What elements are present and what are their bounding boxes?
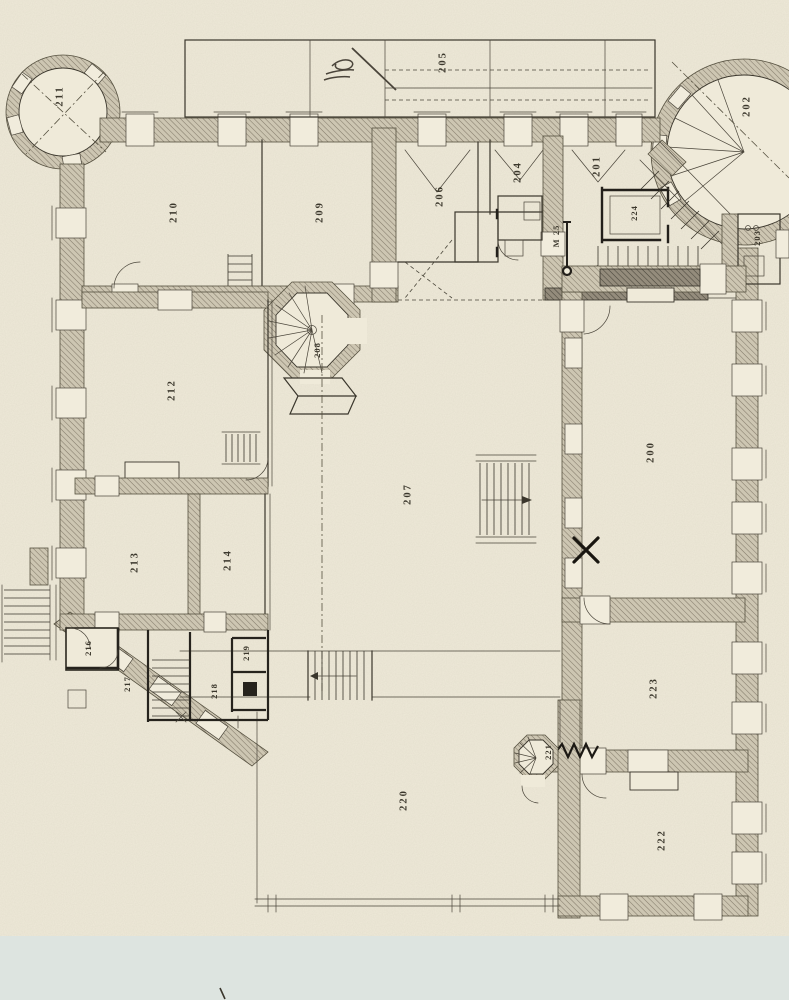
annotation-section-mark: M 25 [551,225,561,248]
room-label-206: 206 [435,185,446,207]
room-label-207: 207 [403,483,414,505]
room-label-219: 219 [241,645,251,661]
tower-211 [6,55,120,169]
room-label-212: 212 [167,379,178,401]
room-label-224: 224 [629,205,639,221]
room-label-222: 222 [657,829,668,851]
room-label-200: 200 [646,441,657,463]
room-label-220: 220 [399,789,410,811]
room-label-204: 204 [513,161,524,183]
room-label-211: 211 [55,85,66,106]
scan-bottom-marks [0,936,789,1000]
room-label-216: 216 [83,640,93,656]
room-label-205: 205 [438,51,449,73]
room-label-223: 223 [649,677,660,699]
scan-margin-bottom [0,936,789,1000]
room-label-217: 217 [122,676,132,692]
room-label-203: 203 [752,230,762,246]
scanned-floor-plan: 211 210 209 206 205 204 201 224 202 203 … [0,0,789,1000]
room-label-210: 210 [169,201,180,223]
room-label-221: 221 [543,744,553,760]
room-label-201: 201 [592,155,603,177]
room-label-208: 208 [312,342,322,358]
room-label-209: 209 [315,201,326,223]
room-label-218: 218 [209,683,219,699]
room-label-214: 214 [223,549,234,571]
room-label-202: 202 [742,95,753,117]
room-label-213: 213 [130,551,141,573]
floor-plan-drawing [0,0,789,1000]
